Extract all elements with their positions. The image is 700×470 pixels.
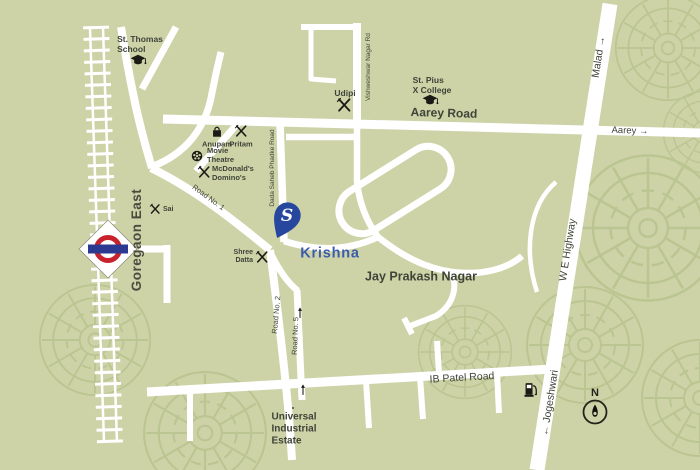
road-segment: [420, 377, 423, 419]
road-segment: [142, 27, 176, 89]
compass-north-label: N: [591, 387, 599, 399]
map-base-layer: S N: [0, 0, 700, 470]
location-map: S N St. Thomas SchoolAnupamPritamMovie T…: [0, 0, 700, 470]
road-loop: [330, 138, 460, 243]
road-we-highway: [537, 4, 610, 470]
station-marker: [79, 220, 137, 278]
road-segment: [497, 373, 499, 413]
road-st-thomas: [121, 27, 152, 168]
road-segment: [530, 182, 556, 292]
road-segment: [311, 27, 336, 81]
road-segment: [139, 245, 167, 303]
krishna-pin-letter: S: [281, 206, 293, 226]
road-segment: [357, 181, 378, 237]
compass: N: [584, 387, 607, 424]
road-no-1: [151, 168, 270, 250]
road-segment: [284, 237, 378, 248]
road-segment: [404, 272, 454, 334]
road-network: [121, 4, 700, 470]
road-segment: [378, 237, 522, 273]
road-segment: [437, 341, 439, 374]
road-aarey: [163, 119, 700, 133]
road-segment: [366, 381, 369, 428]
